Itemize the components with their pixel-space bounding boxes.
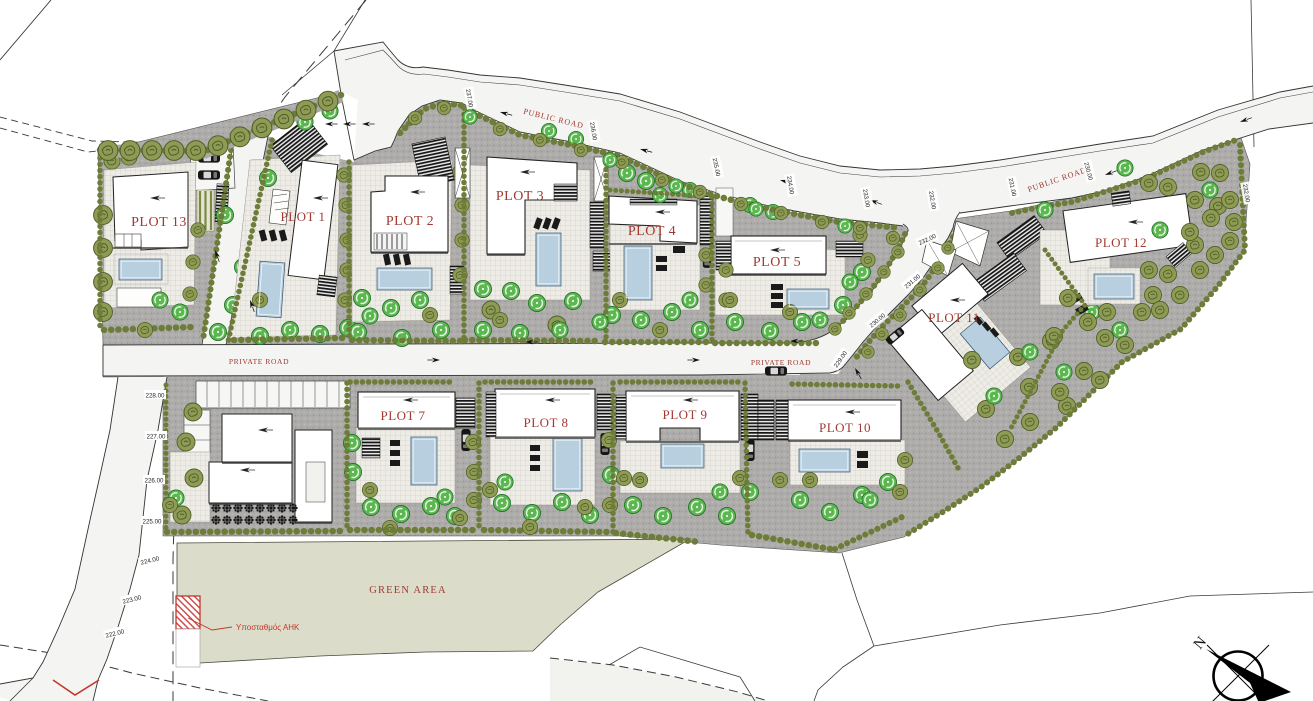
svg-text:PLOT 2: PLOT 2 — [386, 214, 434, 229]
svg-text:225.00: 225.00 — [143, 519, 162, 526]
svg-text:PLOT 10: PLOT 10 — [819, 420, 871, 435]
svg-text:PLOT 12: PLOT 12 — [1095, 235, 1147, 250]
svg-text:PLOT 4: PLOT 4 — [628, 224, 676, 239]
svg-text:PLOT 7: PLOT 7 — [380, 408, 425, 423]
svg-text:226.00: 226.00 — [145, 478, 164, 485]
svg-text:PLOT 3: PLOT 3 — [496, 189, 544, 204]
svg-text:PLOT 1: PLOT 1 — [280, 209, 325, 224]
svg-text:PLOT 13: PLOT 13 — [131, 215, 187, 230]
svg-text:227.00: 227.00 — [147, 434, 166, 441]
svg-text:PLOT 9: PLOT 9 — [662, 407, 707, 422]
svg-text:PLOT 8: PLOT 8 — [523, 415, 568, 430]
svg-text:PRIVATE ROAD: PRIVATE ROAD — [229, 357, 289, 366]
svg-text:PRIVATE ROAD: PRIVATE ROAD — [751, 358, 811, 367]
svg-text:PLOT 5: PLOT 5 — [753, 255, 801, 270]
svg-text:Υποσταθμός ΑΗΚ: Υποσταθμός ΑΗΚ — [236, 623, 300, 632]
svg-text:GREEN AREA: GREEN AREA — [369, 585, 447, 596]
svg-text:228.00: 228.00 — [146, 393, 165, 400]
svg-text:PLOT 11: PLOT 11 — [928, 310, 980, 325]
